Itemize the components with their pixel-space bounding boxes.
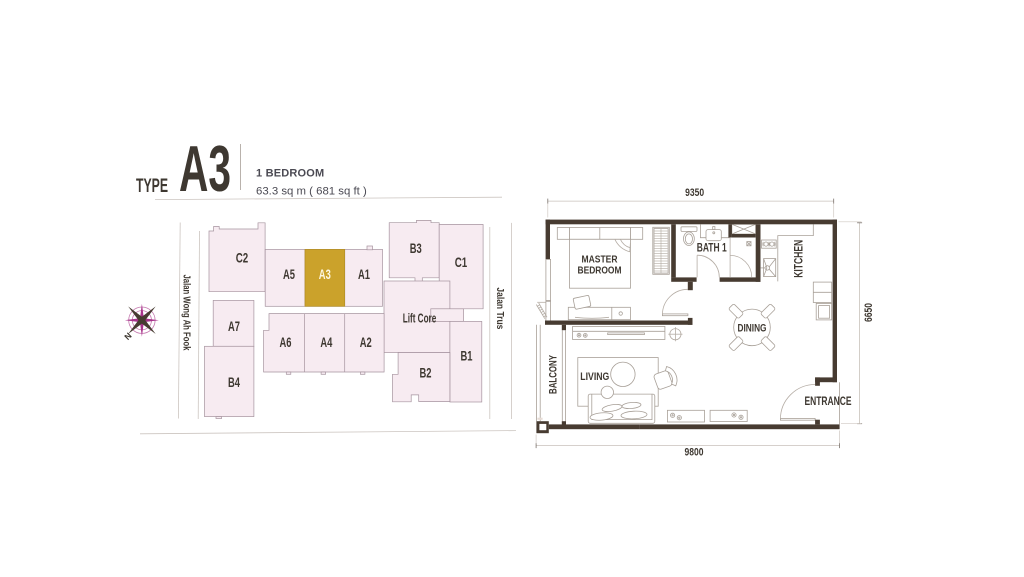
svg-text:1 BEDROOM: 1 BEDROOM xyxy=(256,168,324,180)
svg-text:MASTER: MASTER xyxy=(582,254,618,265)
svg-text:ENTRANCE: ENTRANCE xyxy=(805,395,852,408)
svg-text:63.3 sq m ( 681 sq ft ): 63.3 sq m ( 681 sq ft ) xyxy=(256,186,367,198)
svg-text:Jalan Wong Ah Fook: Jalan Wong Ah Fook xyxy=(181,275,192,351)
svg-text:B3: B3 xyxy=(410,240,422,256)
svg-text:Jalan Trus: Jalan Trus xyxy=(494,287,505,329)
svg-text:TYPE: TYPE xyxy=(136,175,168,197)
svg-text:KITCHEN: KITCHEN xyxy=(791,240,805,278)
svg-text:Lift Core: Lift Core xyxy=(403,312,437,326)
svg-text:B4: B4 xyxy=(228,374,240,390)
svg-text:DINING: DINING xyxy=(738,322,767,334)
svg-text:6650: 6650 xyxy=(863,303,875,322)
svg-text:BEDROOM: BEDROOM xyxy=(578,265,622,276)
svg-text:C2: C2 xyxy=(236,250,249,266)
svg-text:A1: A1 xyxy=(358,266,370,282)
svg-text:B1: B1 xyxy=(461,348,473,364)
svg-text:A3: A3 xyxy=(319,266,331,282)
svg-text:9800: 9800 xyxy=(685,446,704,458)
svg-text:B2: B2 xyxy=(420,365,432,381)
svg-text:A7: A7 xyxy=(228,318,240,334)
svg-text:9350: 9350 xyxy=(685,187,704,199)
svg-text:BATH 1: BATH 1 xyxy=(697,243,727,255)
svg-text:A5: A5 xyxy=(283,266,295,282)
svg-text:LIVING: LIVING xyxy=(580,371,609,383)
svg-text:A4: A4 xyxy=(320,334,332,350)
svg-text:BALCONY: BALCONY xyxy=(548,355,560,394)
svg-text:C1: C1 xyxy=(455,254,468,270)
svg-text:A2: A2 xyxy=(360,334,372,350)
svg-text:A6: A6 xyxy=(280,334,292,350)
svg-text:A3: A3 xyxy=(179,132,231,205)
